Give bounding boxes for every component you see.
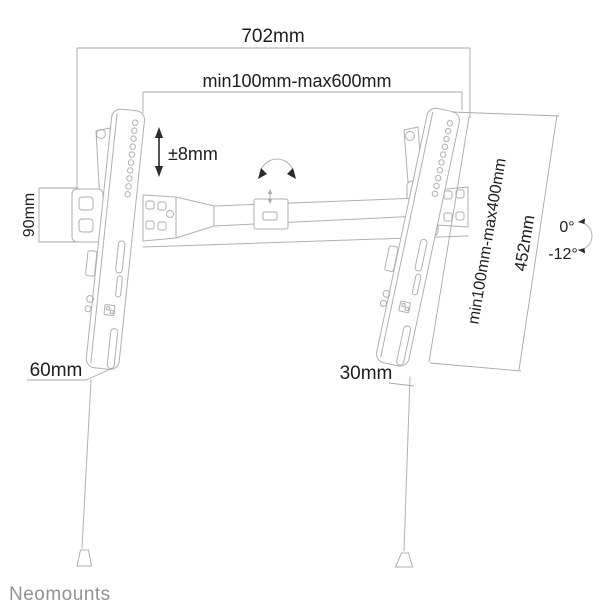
wall-mount-diagram-page: 702mm min100mm-max600mm ±8mm 90mm min100… [0, 0, 610, 610]
dim-wall-plate-height: 90mm [21, 188, 78, 242]
left-pull-tab [77, 550, 92, 566]
brand-logo: Neomounts [9, 584, 111, 605]
dim-vesa-width: min100mm-max600mm [143, 71, 462, 113]
right-pull-tab [396, 553, 413, 567]
height-adjust-label: ±8mm [168, 144, 218, 164]
left-wall-plate [72, 189, 103, 242]
tilt-angle-indicator: 0° -12° [548, 219, 592, 264]
total-width-label: 702mm [241, 26, 304, 47]
right-arm-lock-screw [380, 300, 387, 307]
left-pull-string [77, 380, 92, 566]
dim-bracket-length: 452mm [511, 115, 557, 370]
left-arm-lock-screw [85, 306, 92, 313]
left-adjust-screw [97, 130, 106, 139]
updown-arrow-icon [155, 127, 163, 177]
vesa-width-label: min100mm-max600mm [202, 71, 391, 91]
dim-bottom-right-offset: 30mm [340, 363, 414, 386]
tilt-arc-icon [578, 222, 592, 250]
wall-plate-height-label: 90mm [21, 193, 38, 237]
rotation-arrow-icon [258, 159, 296, 179]
wall-mount-diagram: 702mm min100mm-max600mm ±8mm 90mm min100… [0, 0, 610, 610]
right-bracket-arm [366, 105, 462, 368]
rail-center-bracket [254, 199, 288, 229]
dim-height-adjust: ±8mm [155, 127, 218, 177]
right-pull-string [396, 377, 413, 567]
right-adjust-screw [406, 132, 415, 141]
vesa-height-label: min100mm-max400mm [465, 157, 510, 326]
bottom-right-offset-label: 30mm [340, 363, 393, 384]
tilt-lower-label: -12° [548, 246, 578, 263]
bottom-left-offset-label: 60mm [30, 360, 83, 381]
bracket-length-label: 452mm [511, 214, 539, 273]
tilt-upper-label: 0° [559, 219, 574, 236]
